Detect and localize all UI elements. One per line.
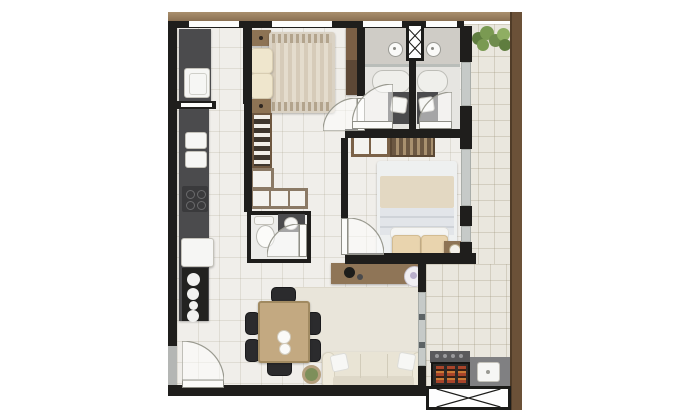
wall-service-bedroom1 [243, 20, 252, 104]
bathroom2-shower-head-dot [431, 47, 434, 50]
bbq-coals-1 [436, 366, 444, 383]
closet-cabinet-divider-1 [269, 190, 271, 207]
bathroom2-door-leaf [419, 121, 452, 129]
wall-living-balcony-top [418, 262, 426, 292]
cooktop-burner-2 [197, 190, 206, 199]
service-window [189, 21, 239, 27]
bbq-knob-2 [443, 354, 447, 358]
bathroom2-balcony-window [461, 62, 471, 106]
wall-bath2-balcony-top [460, 26, 472, 62]
bathroom2-window [426, 21, 457, 27]
sofa-cushion-right [397, 352, 417, 372]
closet-cabinet-vertical [250, 168, 274, 190]
bed1-nightstand-bottom-knob [259, 104, 263, 108]
bedroom2-window-2 [461, 226, 471, 242]
sofa-cushion-seam-2 [387, 354, 388, 378]
service-divider-slot [181, 103, 212, 107]
wall-bedroom2-left [341, 138, 348, 218]
balcony-planter-hedge [472, 26, 511, 53]
sideboard-decor-dot [357, 274, 363, 280]
bathroom1-window [363, 21, 402, 27]
bedroom2-door-leaf [341, 218, 348, 255]
kitchen-sink-basin-2 [185, 151, 207, 168]
cooktop-burner-3 [186, 201, 195, 210]
cooktop-burner-1 [186, 190, 195, 199]
bbq-knob-4 [459, 354, 463, 358]
bathroom1-door-leaf [352, 121, 393, 129]
sideboard-speaker [344, 267, 355, 278]
bed1-pillow-2 [250, 73, 273, 99]
bedroom1-window [272, 21, 332, 27]
closet-shelf-unit [252, 113, 272, 168]
wall-kitchen-closet [244, 104, 252, 212]
living-plant-pot [302, 365, 321, 384]
wall-living-balcony-bottom [418, 366, 426, 386]
balcony-x-bench [426, 386, 511, 410]
bathroom1-shower-glass [365, 64, 409, 67]
wc-door-leaf [299, 224, 307, 257]
stove-burner-1 [187, 273, 200, 286]
bbq-coals-2 [447, 366, 455, 383]
floor-plan [0, 0, 700, 420]
stove-burner-4 [187, 310, 199, 322]
refrigerator [181, 238, 214, 267]
wood-wall-right [510, 12, 522, 410]
stove-burner-2 [187, 288, 199, 300]
bathroom2-shower-glass [416, 64, 460, 67]
sideboard-round-decor-center [410, 272, 417, 279]
bedroom2-window-1 [461, 149, 471, 206]
bed2-wardrobe-divider [369, 136, 371, 154]
bathroom1-door-arc [352, 84, 393, 125]
bathroom1-shower-head-dot [393, 47, 396, 50]
bedroom2-door-arc [348, 218, 384, 255]
hedge-leaf-5 [477, 39, 489, 51]
sofa-cushion-left [329, 352, 349, 372]
sliding-door-handle-2 [419, 342, 425, 348]
wall-left [168, 20, 177, 388]
kitchen-sink-basin-1 [185, 132, 207, 149]
wall-bedroom2-right-mid [460, 206, 472, 226]
wc-door-arc [267, 224, 299, 257]
bbq-knob-3 [451, 354, 455, 358]
sofa-cushion-seam-1 [360, 354, 361, 378]
bathroom2-bathtub [417, 70, 448, 93]
stove-burner-3 [189, 301, 198, 310]
duct-shaft-x-box [406, 23, 424, 61]
table-plate-2 [279, 343, 291, 355]
bbq-knob-1 [435, 354, 439, 358]
wood-band-top [168, 12, 512, 21]
bed2-duvet-fold-1 [380, 216, 454, 218]
sliding-door-handle-1 [419, 314, 425, 320]
bed1-nightstand-top-knob [259, 36, 263, 40]
living-sliding-glass-door [418, 292, 426, 366]
bed1-duvet-fringe-top [272, 34, 332, 43]
closet-cabinet-divider-2 [288, 190, 290, 207]
wall-bath2-balcony-bottom [460, 106, 472, 149]
cooktop-burner-4 [197, 201, 206, 210]
laundry-sink-basin [189, 73, 207, 95]
closet-cabinet-row [250, 188, 308, 209]
table-plate-1 [277, 330, 291, 344]
entry-door-arc [182, 341, 224, 381]
bed2-blanket [380, 176, 454, 208]
entry-door-opening [168, 346, 177, 386]
wall-bedroom2-right-corner [460, 242, 472, 264]
bed1-pillow-1 [250, 48, 273, 74]
balcony-sink-drain [486, 370, 490, 374]
bbq-coals-3 [458, 366, 466, 383]
